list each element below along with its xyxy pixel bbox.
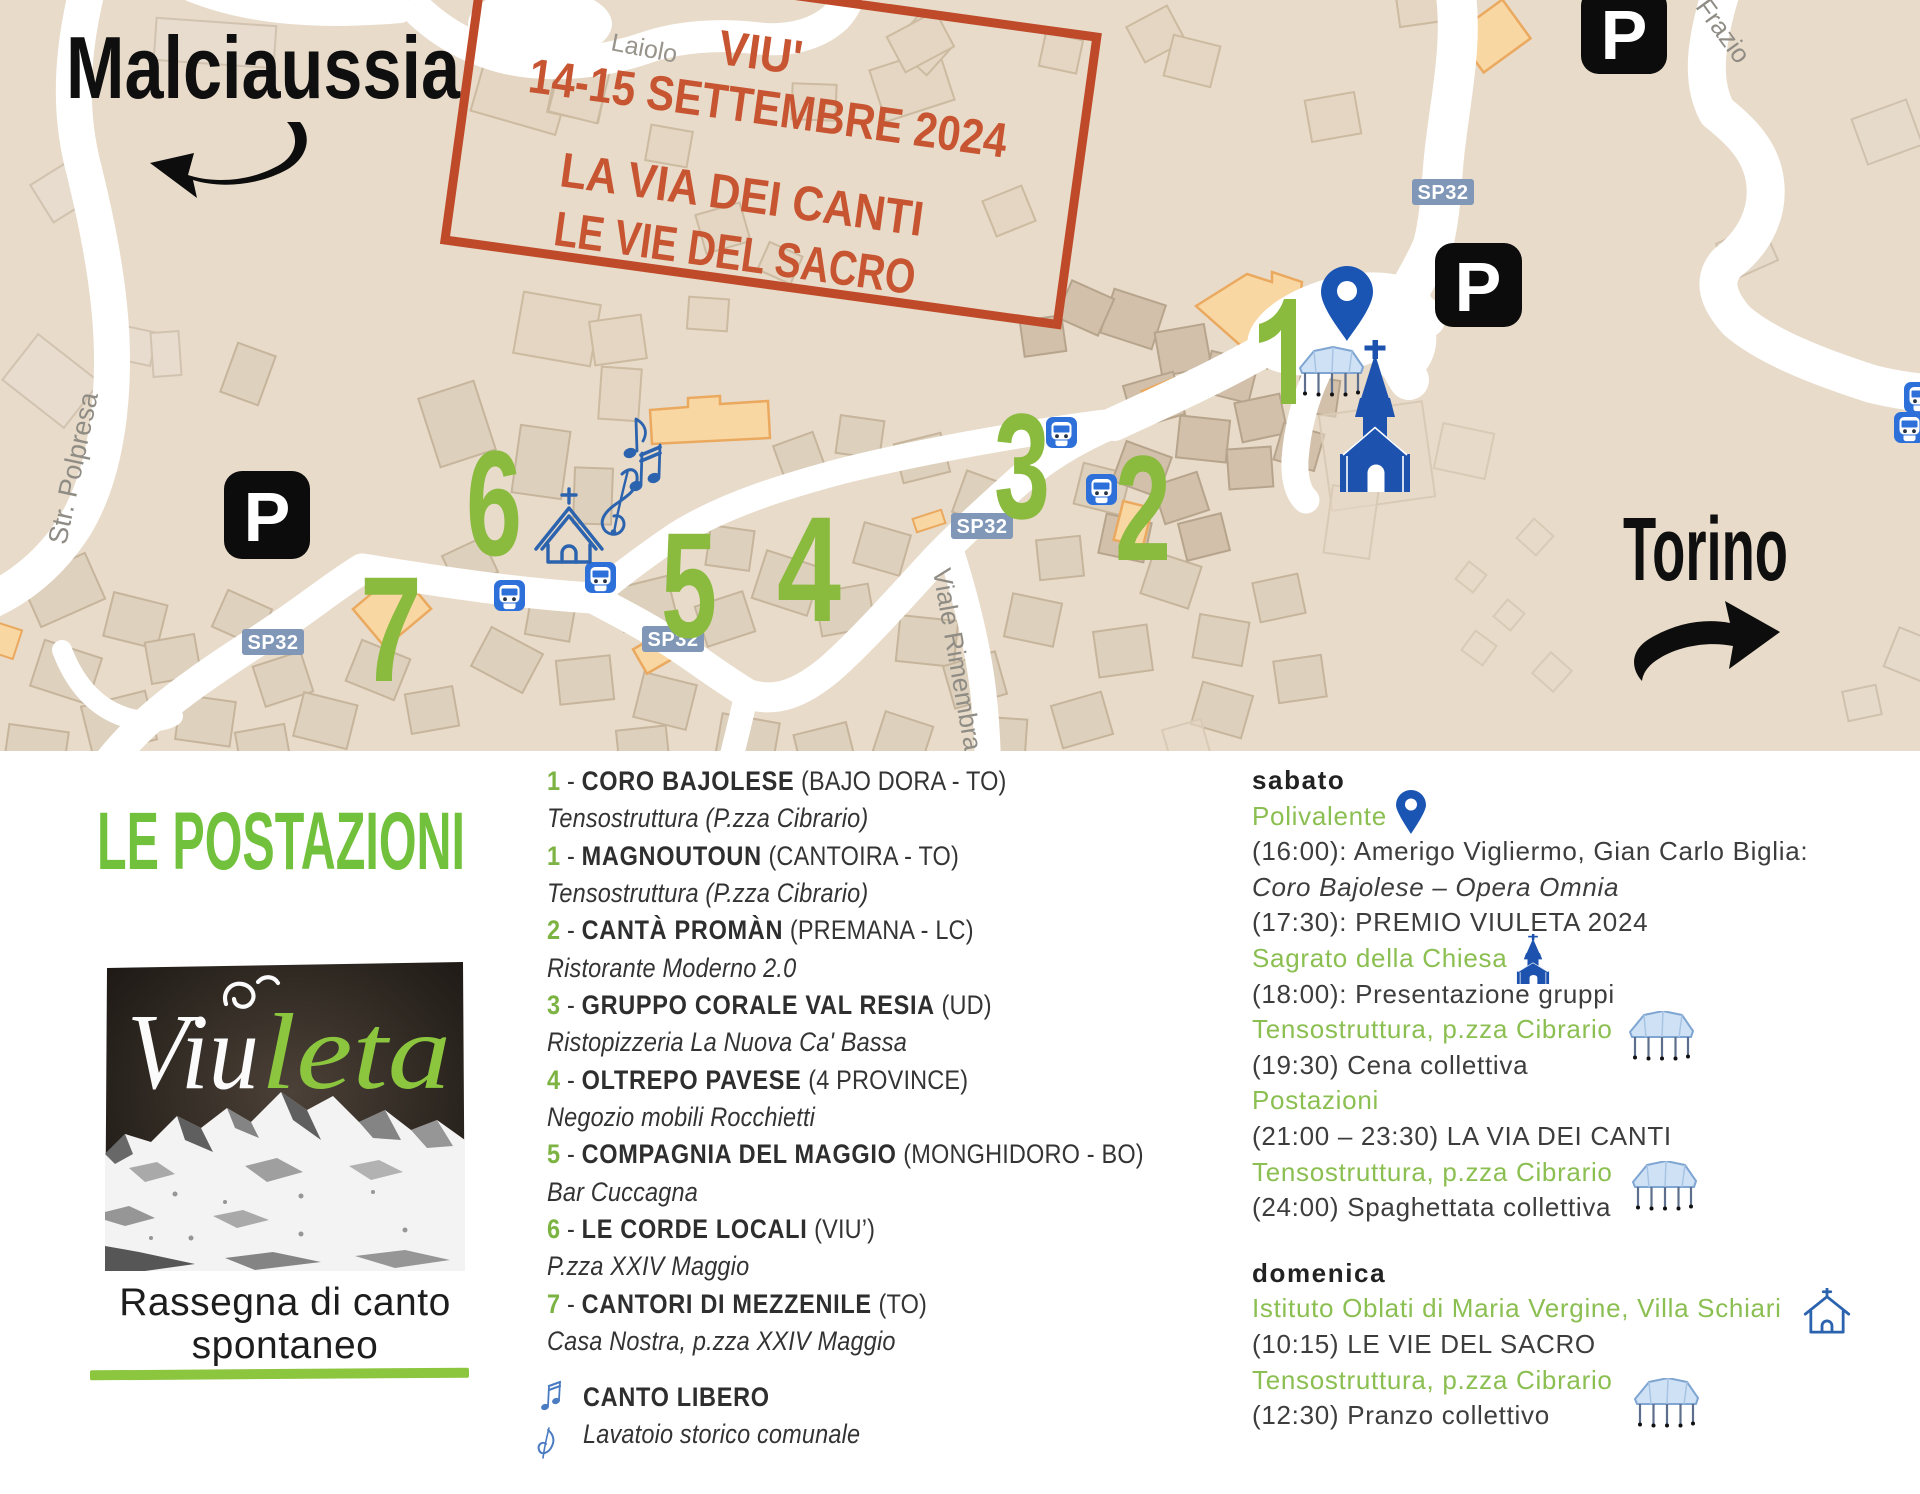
- svg-text:5: 5: [661, 501, 717, 669]
- svg-text:Viu: Viu: [127, 993, 259, 1112]
- svg-text:2: 2: [1115, 424, 1171, 592]
- svg-text:leta: leta: [261, 993, 451, 1112]
- svg-text:4: 4: [777, 485, 841, 653]
- svg-text:Torino: Torino: [1623, 500, 1788, 600]
- svg-text:LE POSTAZIONI: LE POSTAZIONI: [97, 800, 465, 880]
- svg-text:3: 3: [994, 382, 1050, 550]
- svg-text:P: P: [1455, 248, 1502, 326]
- svg-text:7: 7: [360, 545, 422, 713]
- svg-text:6: 6: [466, 419, 522, 587]
- svg-text:Malciaussia: Malciaussia: [66, 18, 461, 117]
- svg-text:P: P: [1601, 0, 1648, 74]
- svg-text:P: P: [244, 478, 291, 556]
